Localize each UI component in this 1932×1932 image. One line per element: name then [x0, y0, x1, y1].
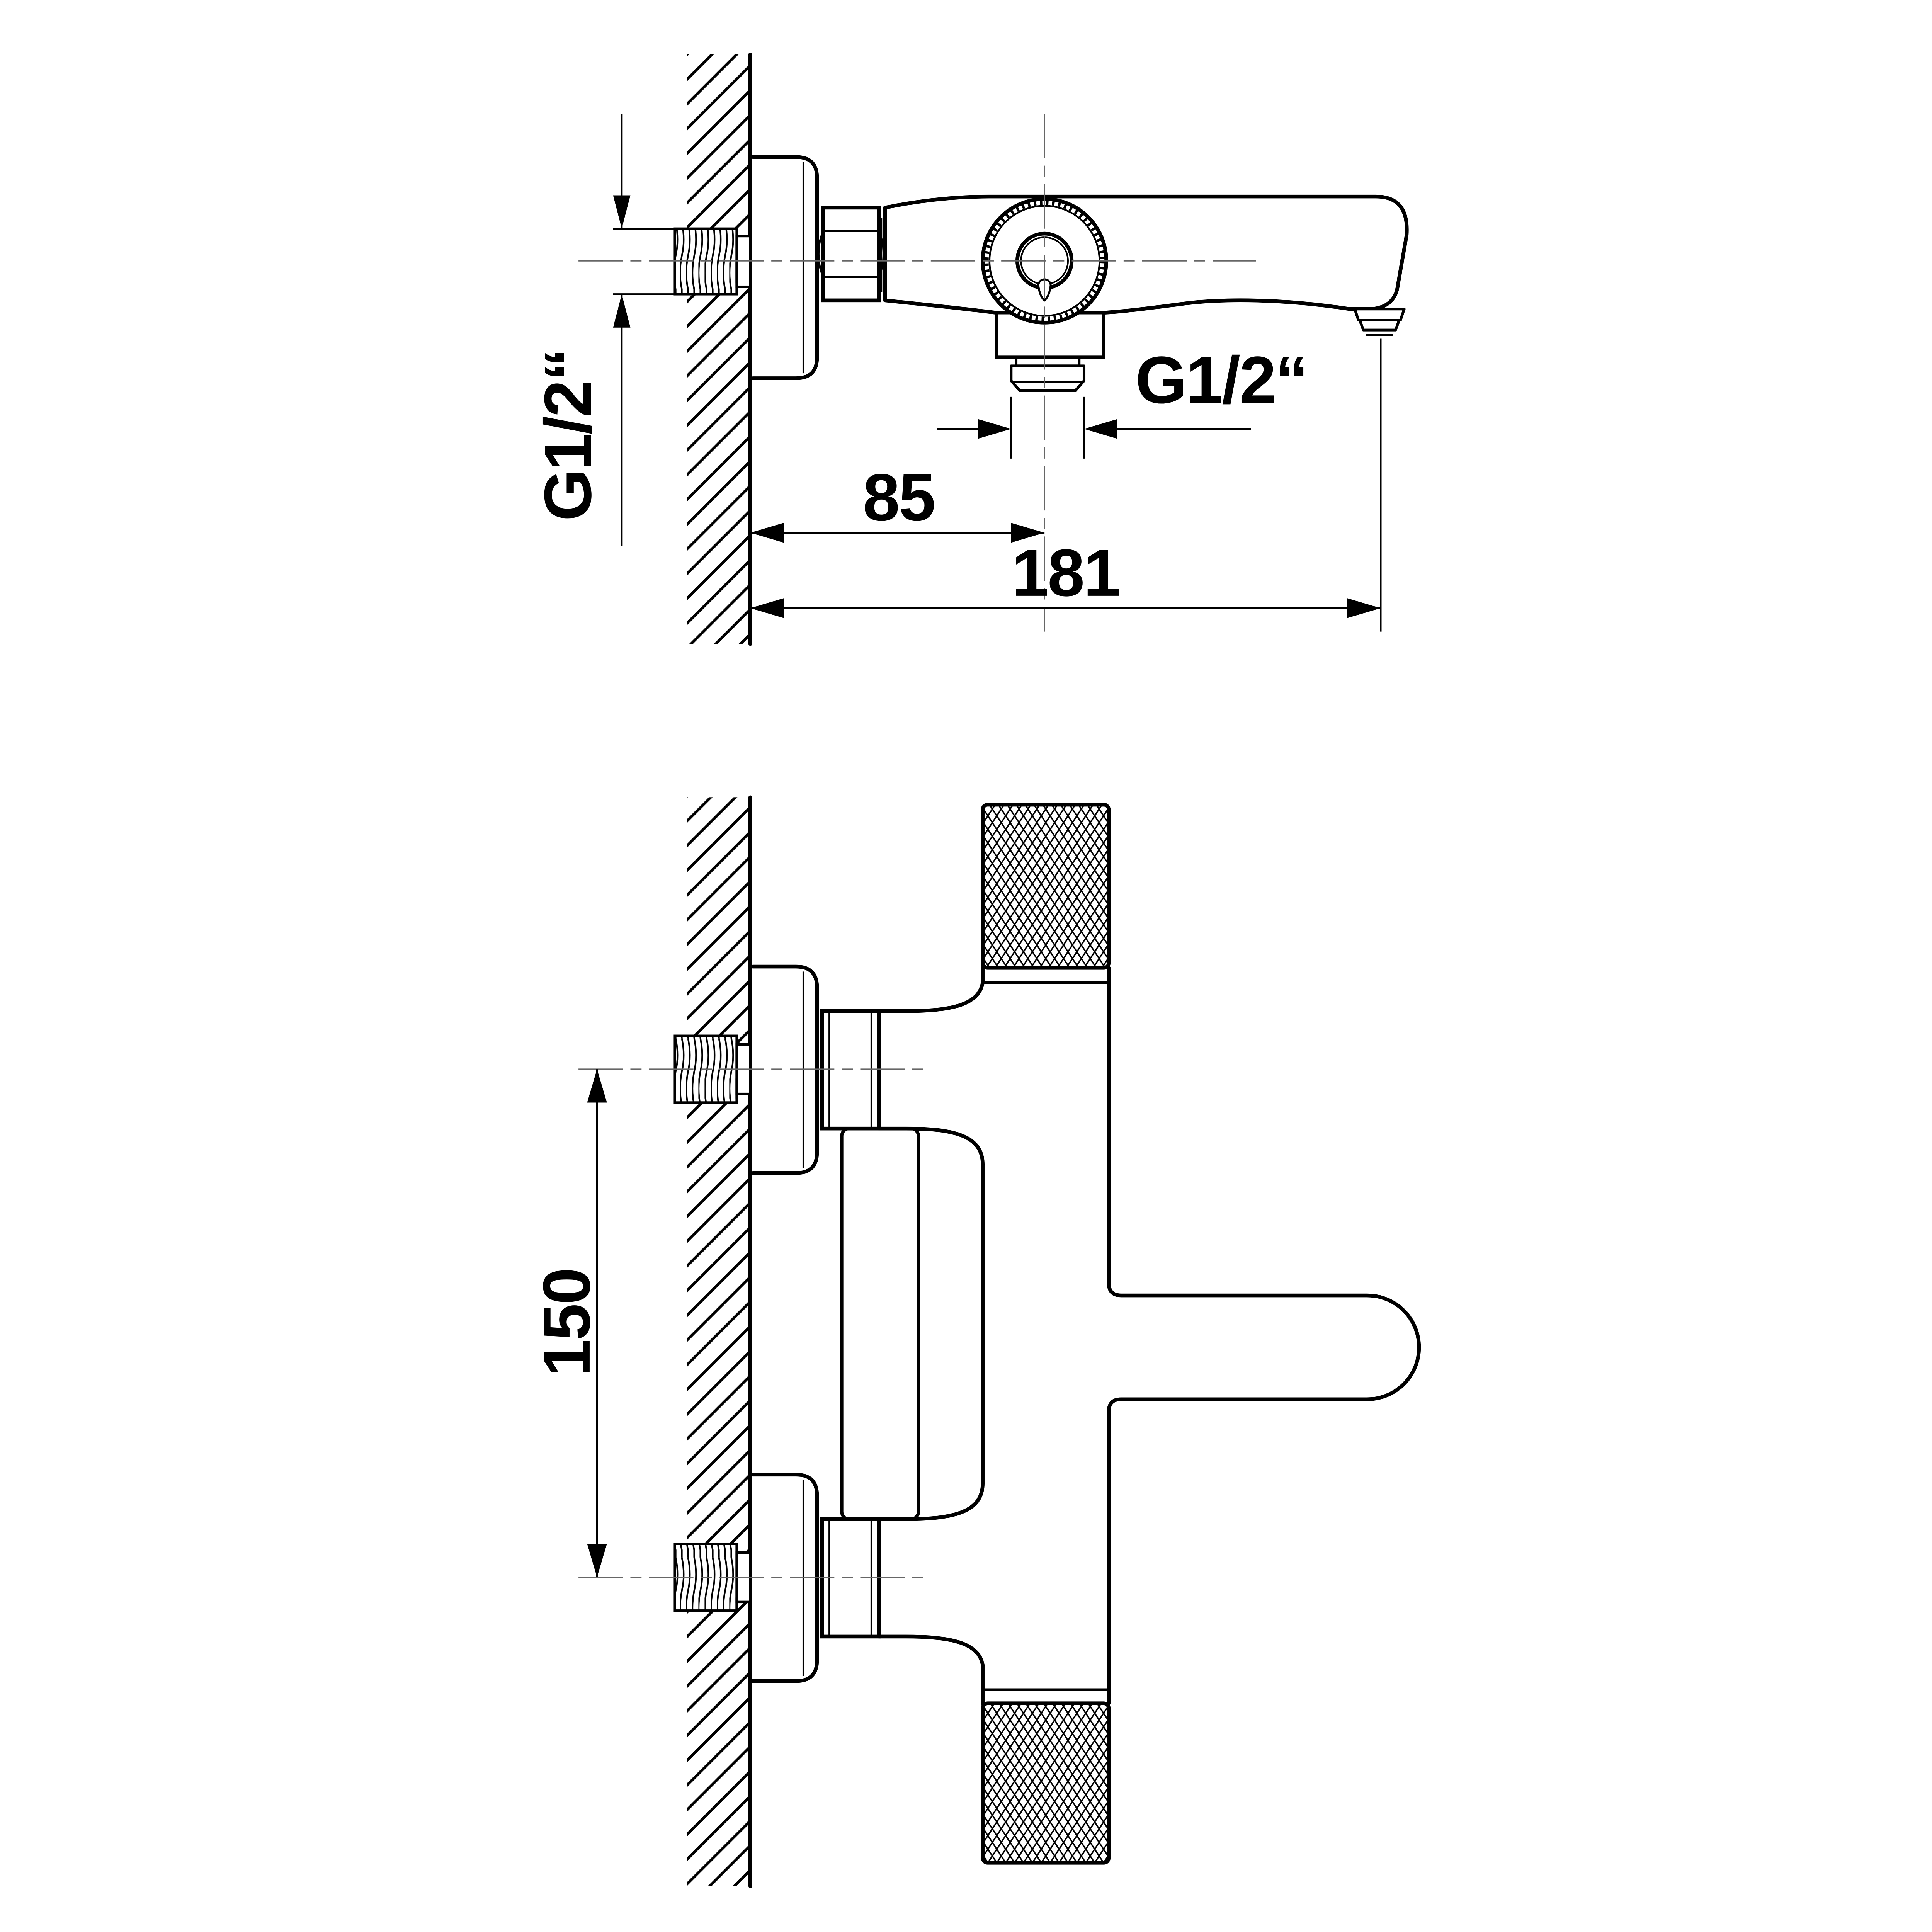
outlet-thread-block — [1011, 366, 1084, 391]
dim-181-label: 181 — [1012, 536, 1119, 610]
dim-150-label: 150 — [529, 1269, 604, 1377]
knurled-handle-top — [983, 805, 1109, 968]
dim-85-label: 85 — [863, 460, 935, 535]
technical-drawing-canvas: G1/2“ G1/2“ 85 181 — [0, 0, 1932, 1932]
knurled-handle-bottom — [983, 1703, 1109, 1863]
wall-section-top-view — [687, 54, 750, 644]
wall-hatch-pattern — [687, 797, 750, 1886]
escutcheon-top-view — [753, 157, 817, 378]
valve-body-plate — [842, 1129, 918, 1519]
inlet-thread-size-label: G1/2“ — [531, 349, 605, 521]
wall-hatch-pattern — [687, 54, 750, 644]
hex-nut-connector — [819, 207, 884, 300]
wall-section-front-view — [687, 797, 750, 1886]
outlet-thread-size-label: G1/2“ — [1135, 343, 1307, 417]
